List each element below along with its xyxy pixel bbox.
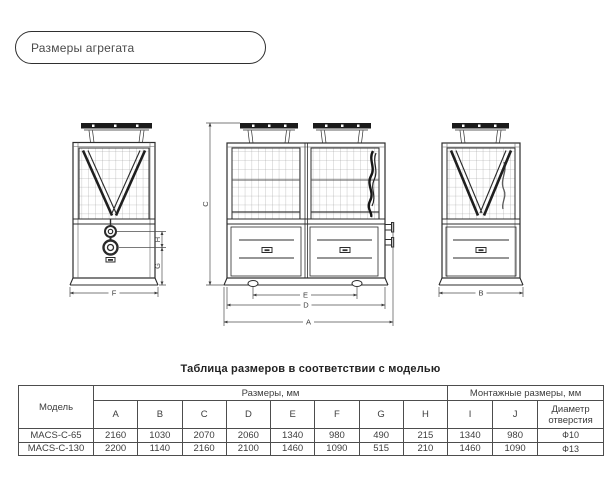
table-column-header-row: A B C D E F G H I J Диаметр отверстия [19,401,604,429]
column-header-e: E [271,401,315,429]
unit-side-view-right [439,123,523,285]
column-header-d: D [226,401,270,429]
value-cell: Ф13 [538,442,604,456]
dim-label-e: E [303,291,308,300]
column-header-g: G [359,401,403,429]
group-header-dimensions: Размеры, мм [94,386,448,401]
model-cell: MACS-C-130 [19,442,94,456]
table-row: MACS-C-130 2200 1140 2160 2100 1460 1090… [19,442,604,456]
model-column-header: Модель [19,386,94,429]
column-header-c: C [182,401,226,429]
value-cell: 1340 [271,429,315,443]
column-header-a: A [94,401,138,429]
dim-label-f: F [112,289,117,298]
dim-label-b: B [478,289,483,298]
dim-label-a: A [306,318,311,327]
table-group-header-row: Модель Размеры, мм Монтажные размеры, мм [19,386,604,401]
dim-label-h: H [153,237,162,242]
value-cell: 1460 [448,442,493,456]
value-cell: 1030 [138,429,182,443]
value-cell: 490 [359,429,403,443]
column-header-i: I [448,401,493,429]
table-row: MACS-C-65 2160 1030 2070 2060 1340 980 4… [19,429,604,443]
value-cell: 1090 [315,442,359,456]
table-title: Таблица размеров в соответствии с модель… [18,363,603,375]
column-header-hole-diameter: Диаметр отверстия [538,401,604,429]
dim-label-d: D [303,301,309,310]
value-cell: 515 [359,442,403,456]
dimensions-table: Модель Размеры, мм Монтажные размеры, мм… [18,385,604,456]
value-cell: 1340 [448,429,493,443]
value-cell: 2060 [226,429,270,443]
model-cell: MACS-C-65 [19,429,94,443]
value-cell: 980 [315,429,359,443]
value-cell: 2200 [94,442,138,456]
value-cell: 210 [403,442,447,456]
value-cell: 1140 [138,442,182,456]
value-cell: 1460 [271,442,315,456]
group-header-mounting: Монтажные размеры, мм [448,386,604,401]
value-cell: 2160 [94,429,138,443]
dimension-labels: F H G C E D A B [112,201,484,327]
dimension-label-backs [109,289,487,327]
value-cell: 980 [493,429,538,443]
dim-label-c: C [201,201,210,207]
value-cell: 2100 [226,442,270,456]
value-cell: Ф10 [538,429,604,443]
column-header-f: F [315,401,359,429]
dim-label-g: G [153,263,162,269]
unit-front-view [224,123,394,287]
column-header-h: H [403,401,447,429]
unit-side-view-left [70,123,158,285]
value-cell: 2070 [182,429,226,443]
value-cell: 2160 [182,442,226,456]
value-cell: 1090 [493,442,538,456]
value-cell: 215 [403,429,447,443]
column-header-b: B [138,401,182,429]
column-header-j: J [493,401,538,429]
